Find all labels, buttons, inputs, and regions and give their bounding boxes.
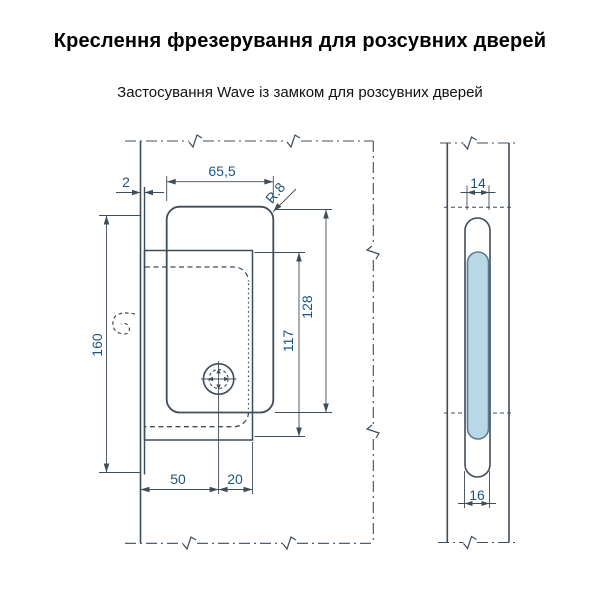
front-view: 65,5 2 R.8 160 128 117 50 20 bbox=[89, 135, 379, 549]
lock-body-hidden-outline bbox=[145, 267, 249, 427]
dim-faceplate-height: 117 bbox=[280, 330, 296, 353]
milling-pocket-outline bbox=[167, 207, 274, 413]
dim-pocket-height: 128 bbox=[299, 295, 315, 319]
dim-center-offset: 20 bbox=[227, 471, 243, 487]
dim-recess-height: 160 bbox=[89, 333, 105, 357]
dim-slot-width-bottom: 16 bbox=[469, 487, 485, 503]
dim-edge-offset: 2 bbox=[122, 174, 130, 190]
latch-hidden-outline bbox=[113, 313, 135, 334]
door-break-lines bbox=[125, 141, 373, 543]
dim-backset: 50 bbox=[170, 471, 186, 487]
dim-pocket-width: 65,5 bbox=[208, 163, 235, 179]
dim-slot-width-top: 14 bbox=[470, 175, 486, 191]
faceplate-outline bbox=[145, 251, 253, 441]
front-dimension-lines bbox=[99, 176, 332, 494]
side-view: 14 16 bbox=[438, 137, 517, 549]
drawing-page: { "header": { "title": "Креслення фрезер… bbox=[0, 0, 600, 600]
front-dimension-labels: 65,5 2 R.8 160 128 117 50 20 bbox=[89, 163, 315, 487]
technical-drawing: 65,5 2 R.8 160 128 117 50 20 bbox=[0, 0, 600, 600]
handle-insert bbox=[468, 252, 489, 439]
